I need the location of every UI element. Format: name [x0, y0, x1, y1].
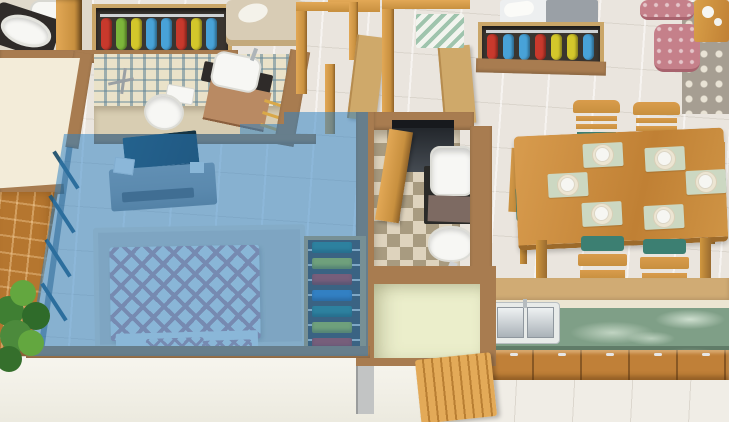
- balcony-plant: [0, 0, 729, 422]
- plant-foliage: [0, 346, 22, 372]
- floorplan-scene: [0, 0, 729, 422]
- plant-foliage: [18, 330, 44, 356]
